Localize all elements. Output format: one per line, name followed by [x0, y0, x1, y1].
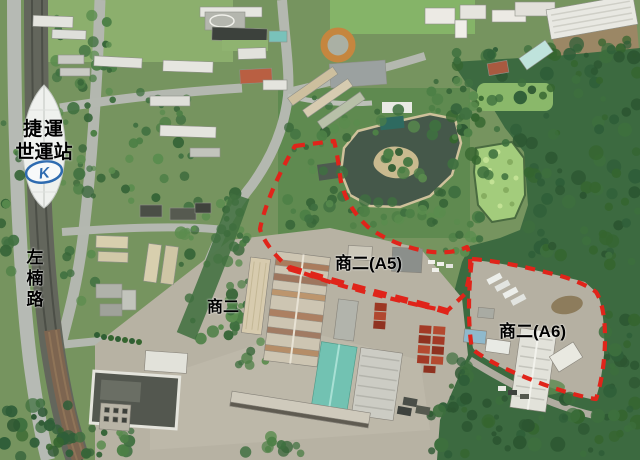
zone-label-c2: 商二: [207, 293, 239, 317]
aerial-photo-canvas: K: [0, 0, 640, 460]
gray-warehouse: [351, 347, 402, 420]
zone-label-c2-a5: 商二(A5): [335, 249, 402, 274]
lotus-pond: [474, 142, 525, 222]
road-name-label: 左楠路: [25, 247, 45, 310]
zone-label-c2-a6: 商二(A6): [499, 317, 566, 342]
station-name-label-line2: 世運站: [11, 137, 77, 164]
aerial-photo: K 捷運 世運站 左楠路 商二 商二(A5) 商二(A6): [0, 0, 640, 460]
